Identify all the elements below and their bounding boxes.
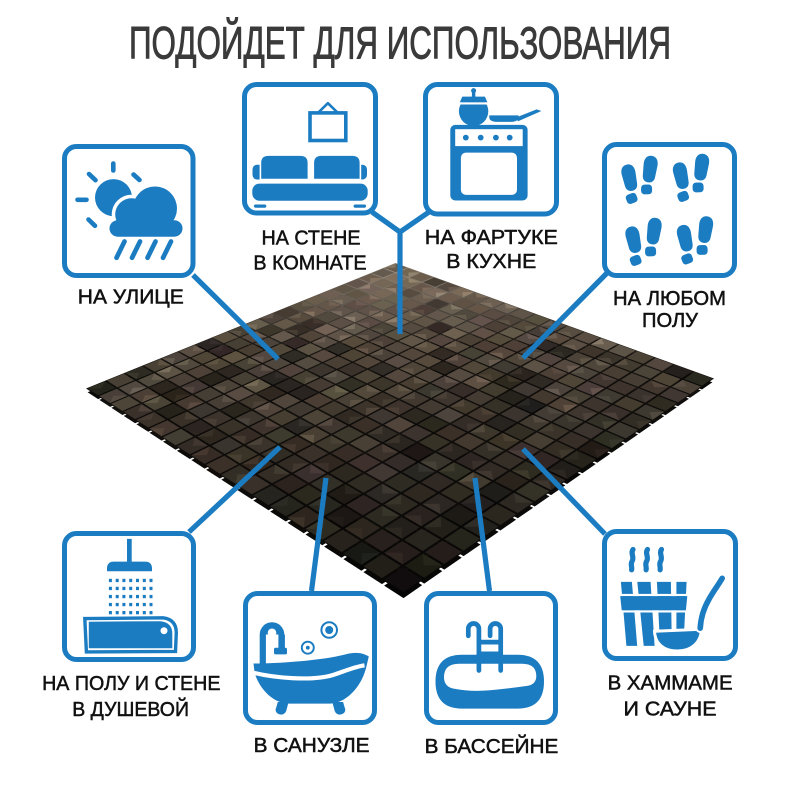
svg-text:НА УЛИЦЕ: НА УЛИЦЕ — [78, 287, 184, 309]
svg-text:В САНУЗЛЕ: В САНУЗЛЕ — [254, 735, 370, 757]
svg-text:ПОДОЙДЕТ ДЛЯ ИСПОЛЬЗОВАНИЯ: ПОДОЙДЕТ ДЛЯ ИСПОЛЬЗОВАНИЯ — [129, 18, 671, 69]
svg-text:В КОМНАТЕ: В КОМНАТЕ — [253, 253, 366, 275]
svg-text:НА ЛЮБОМ: НА ЛЮБОМ — [613, 288, 726, 310]
svg-text:В ХАММАМЕ: В ХАММАМЕ — [608, 672, 733, 694]
svg-text:НА ФАРТУКЕ: НА ФАРТУКЕ — [425, 227, 558, 249]
svg-text:В БАССЕЙНЕ: В БАССЕЙНЕ — [425, 734, 559, 758]
svg-text:НА СТЕНЕ: НА СТЕНЕ — [262, 227, 361, 249]
svg-text:В ДУШЕВОЙ: В ДУШЕВОЙ — [72, 697, 189, 721]
svg-text:В КУХНЕ: В КУХНЕ — [446, 251, 536, 273]
svg-text:И САУНЕ: И САУНЕ — [624, 699, 717, 721]
svg-text:ПОЛУ: ПОЛУ — [642, 310, 698, 332]
svg-text:НА ПОЛУ И СТЕНЕ: НА ПОЛУ И СТЕНЕ — [42, 673, 220, 695]
